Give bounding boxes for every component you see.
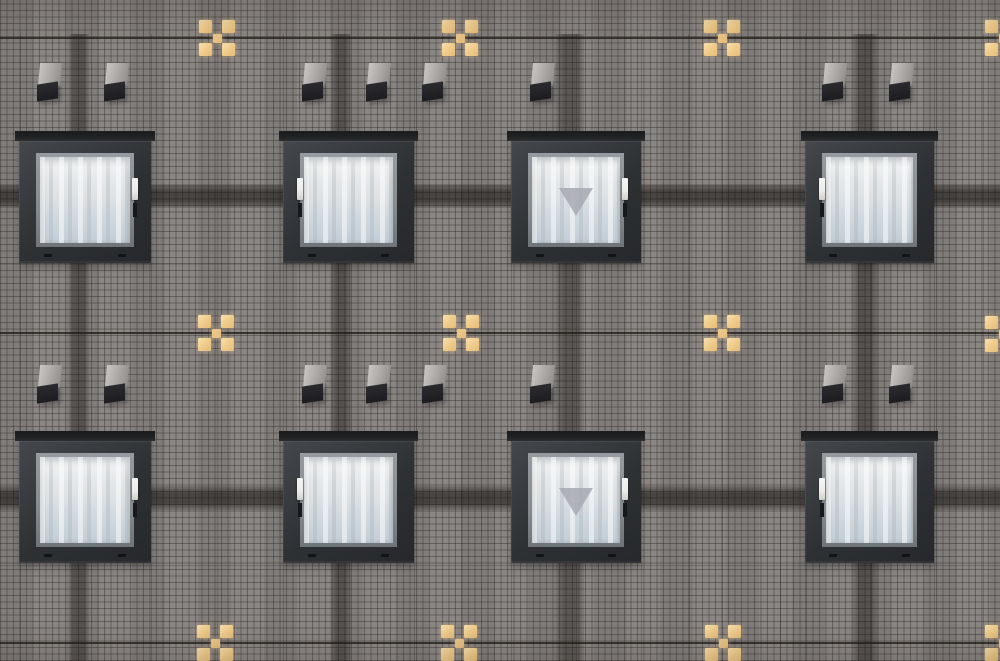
wall-vent xyxy=(889,63,914,101)
weep-hole xyxy=(381,554,389,557)
cross-tile-corner xyxy=(727,20,740,33)
window-handle xyxy=(132,178,138,200)
facade-accent-line-horizontal xyxy=(0,332,1000,334)
tile-cross-motif xyxy=(705,625,741,661)
cross-tile-corner xyxy=(466,315,479,328)
tile-cross-motif xyxy=(443,315,479,351)
wall-vent xyxy=(822,63,847,101)
window-handle xyxy=(132,478,138,500)
facade-joint-line-vertical xyxy=(983,34,984,661)
cross-tile-corner xyxy=(222,20,235,33)
cross-tile-center xyxy=(211,639,220,648)
cross-tile-corner xyxy=(199,20,212,33)
vent-face xyxy=(530,383,551,403)
window-sash xyxy=(822,453,917,547)
weep-hole xyxy=(44,254,52,257)
window-cap xyxy=(507,131,645,141)
window-cap xyxy=(15,431,155,441)
tile-cross-motif xyxy=(985,316,1000,352)
window-frame xyxy=(511,141,641,263)
window-frame xyxy=(19,141,151,263)
cross-tile-corner xyxy=(464,625,477,638)
cross-tile-corner xyxy=(985,648,998,661)
cross-tile-corner xyxy=(464,648,477,661)
cross-tile-corner xyxy=(985,316,998,329)
window-latch xyxy=(623,203,627,217)
emergency-marker-triangle xyxy=(559,188,593,216)
vent-face xyxy=(104,81,125,101)
vent-face xyxy=(366,383,387,403)
cross-tile-corner xyxy=(443,315,456,328)
window xyxy=(511,431,641,563)
wall-vent xyxy=(366,63,391,101)
window-sash xyxy=(528,453,624,547)
window-latch xyxy=(298,203,302,217)
cross-tile-corner xyxy=(198,315,211,328)
weep-hole xyxy=(536,254,544,257)
weep-hole xyxy=(118,554,126,557)
wall-vent xyxy=(366,365,391,403)
window-handle xyxy=(297,178,303,200)
window-frame xyxy=(283,141,414,263)
window-latch xyxy=(820,203,824,217)
window-handle xyxy=(819,478,825,500)
window-handle xyxy=(622,478,628,500)
weep-hole xyxy=(902,554,910,557)
window-frame xyxy=(805,141,934,263)
vent-face xyxy=(822,81,843,101)
cross-tile-corner xyxy=(441,648,454,661)
wall-vent xyxy=(530,63,555,101)
wall-vent xyxy=(302,365,327,403)
cross-tile-corner xyxy=(728,648,741,661)
facade-band-vertical xyxy=(331,34,351,661)
cross-tile-corner xyxy=(220,625,233,638)
facade-joint-line-vertical xyxy=(511,34,512,661)
window-glass xyxy=(826,457,913,543)
curtain xyxy=(826,157,913,243)
weep-hole xyxy=(902,254,910,257)
cross-tile-center xyxy=(718,329,727,338)
vent-face xyxy=(889,81,910,101)
wall-vent xyxy=(302,63,327,101)
cross-tile-corner xyxy=(442,43,455,56)
window-glass xyxy=(304,457,393,543)
window-glass xyxy=(532,457,620,543)
window-frame xyxy=(805,441,934,563)
weep-hole xyxy=(308,554,316,557)
cross-tile-corner xyxy=(197,648,210,661)
window-glass xyxy=(826,157,913,243)
curtain xyxy=(40,157,130,243)
window-glass xyxy=(532,157,620,243)
cross-tile-corner xyxy=(199,43,212,56)
window xyxy=(19,431,151,563)
facade-accent-line-horizontal xyxy=(0,642,1000,644)
curtain xyxy=(304,157,393,243)
window-glass xyxy=(40,457,130,543)
curtain xyxy=(40,457,130,543)
cross-tile-corner xyxy=(442,20,455,33)
window-cap xyxy=(507,431,645,441)
vent-face xyxy=(37,81,58,101)
weep-hole xyxy=(829,254,837,257)
window-latch xyxy=(820,503,824,517)
facade-joint-line-vertical xyxy=(934,34,935,661)
cross-tile-corner xyxy=(705,648,718,661)
window-glass xyxy=(40,157,130,243)
weep-hole xyxy=(608,254,616,257)
cross-tile-center xyxy=(456,34,465,43)
cross-tile-corner xyxy=(222,43,235,56)
cross-tile-corner xyxy=(704,20,717,33)
tile-cross-motif xyxy=(441,625,477,661)
vent-face xyxy=(422,81,443,101)
vent-face xyxy=(530,81,551,101)
window-latch xyxy=(623,503,627,517)
cross-tile-center xyxy=(718,34,727,43)
window-cap xyxy=(801,131,938,141)
facade-accent-line-horizontal xyxy=(0,37,1000,39)
weep-hole xyxy=(118,254,126,257)
cross-tile-corner xyxy=(728,625,741,638)
facade-joint-line-vertical xyxy=(688,34,689,661)
wall-vent xyxy=(422,63,447,101)
curtain xyxy=(304,457,393,543)
facade-band-vertical xyxy=(852,34,878,661)
cross-tile-corner xyxy=(727,43,740,56)
vent-face xyxy=(889,383,910,403)
cross-tile-corner xyxy=(727,338,740,351)
window xyxy=(283,431,414,563)
tile-cross-motif xyxy=(985,625,1000,661)
cross-tile-center xyxy=(719,639,728,648)
weep-hole xyxy=(829,554,837,557)
window-sash xyxy=(528,153,624,247)
vent-face xyxy=(366,81,387,101)
wall-vent xyxy=(37,365,62,403)
cross-tile-corner xyxy=(220,648,233,661)
cross-tile-corner xyxy=(704,315,717,328)
window-sash xyxy=(36,453,134,547)
cross-tile-corner xyxy=(985,339,998,352)
tile-cross-motif xyxy=(704,315,740,351)
cross-tile-corner xyxy=(221,315,234,328)
window-frame xyxy=(19,441,151,563)
window-latch xyxy=(133,203,137,217)
window-handle xyxy=(622,178,628,200)
cross-tile-corner xyxy=(443,338,456,351)
vent-face xyxy=(422,383,443,403)
vent-face xyxy=(822,383,843,403)
facade-joint-line-vertical xyxy=(780,34,781,661)
wall-vent xyxy=(530,365,555,403)
facade-joint-line-vertical xyxy=(414,34,415,661)
window-cap xyxy=(279,131,418,141)
window xyxy=(805,431,934,563)
window xyxy=(805,131,934,263)
facade-band-vertical xyxy=(69,34,89,661)
wall-vent xyxy=(422,365,447,403)
weep-hole xyxy=(608,554,616,557)
facade-joint-line-vertical xyxy=(283,34,284,661)
window xyxy=(19,131,151,263)
cross-tile-corner xyxy=(441,625,454,638)
window-cap xyxy=(15,131,155,141)
vent-face xyxy=(104,383,125,403)
window-cap xyxy=(801,431,938,441)
cross-tile-center xyxy=(212,329,221,338)
window-sash xyxy=(36,153,134,247)
facade-joint-line-vertical xyxy=(151,34,152,661)
cross-tile-corner xyxy=(466,338,479,351)
window-frame xyxy=(511,441,641,563)
cross-tile-corner xyxy=(985,43,998,56)
cross-tile-corner xyxy=(704,43,717,56)
window-glass xyxy=(304,157,393,243)
window-sash xyxy=(300,453,397,547)
building-facade-photo xyxy=(0,0,1000,661)
window-sash xyxy=(822,153,917,247)
vent-face xyxy=(37,383,58,403)
facade-joint-line-vertical xyxy=(641,34,642,661)
cross-tile-corner xyxy=(465,20,478,33)
facade-joint-line-vertical xyxy=(20,34,21,661)
tile-cross-motif xyxy=(704,20,740,56)
window-handle xyxy=(297,478,303,500)
tile-cross-motif xyxy=(197,625,233,661)
wall-vent xyxy=(889,365,914,403)
facade-band-vertical xyxy=(556,34,584,661)
window xyxy=(511,131,641,263)
cross-tile-center xyxy=(457,329,466,338)
wall-vent xyxy=(104,63,129,101)
window-latch xyxy=(298,503,302,517)
vent-face xyxy=(302,383,323,403)
window-frame xyxy=(283,441,414,563)
window xyxy=(283,131,414,263)
weep-hole xyxy=(308,254,316,257)
facade-joint-line-horizontal xyxy=(0,263,1000,264)
window-handle xyxy=(819,178,825,200)
tile-cross-motif xyxy=(198,315,234,351)
tile-cross-motif xyxy=(442,20,478,56)
cross-tile-corner xyxy=(705,625,718,638)
window-latch xyxy=(133,503,137,517)
weep-hole xyxy=(44,554,52,557)
weep-hole xyxy=(536,554,544,557)
cross-tile-center xyxy=(213,34,222,43)
window-cap xyxy=(279,431,418,441)
cross-tile-corner xyxy=(465,43,478,56)
wall-vent xyxy=(104,365,129,403)
window-sash xyxy=(300,153,397,247)
cross-tile-corner xyxy=(197,625,210,638)
tile-cross-motif xyxy=(985,20,1000,56)
cross-tile-corner xyxy=(727,315,740,328)
cross-tile-corner xyxy=(985,625,998,638)
facade-joint-line-horizontal xyxy=(0,565,1000,566)
emergency-marker-triangle xyxy=(559,488,593,516)
cross-tile-corner xyxy=(985,20,998,33)
cross-tile-corner xyxy=(198,338,211,351)
cross-tile-center xyxy=(455,639,464,648)
wall-vent xyxy=(822,365,847,403)
weep-hole xyxy=(381,254,389,257)
vent-face xyxy=(302,81,323,101)
cross-tile-corner xyxy=(704,338,717,351)
facade-joint-line-vertical xyxy=(805,34,806,661)
cross-tile-corner xyxy=(221,338,234,351)
wall-vent xyxy=(37,63,62,101)
tile-cross-motif xyxy=(199,20,235,56)
curtain xyxy=(826,457,913,543)
